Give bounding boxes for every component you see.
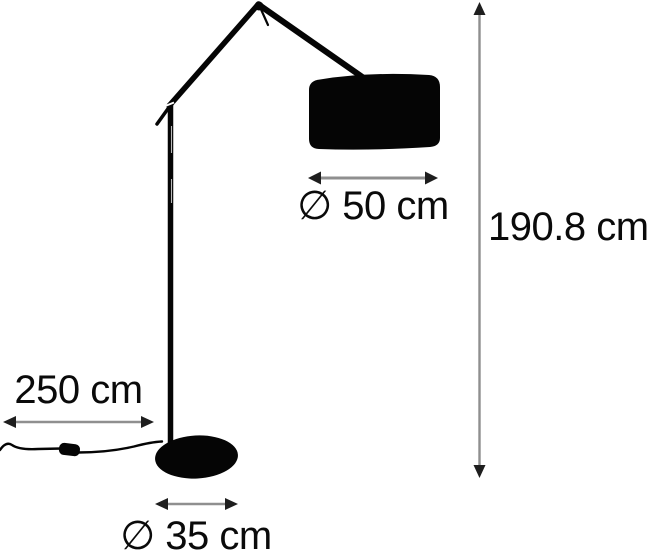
lamp-dimension-diagram: ∅ 50 cm 190.8 cm 250 cm ∅ 35 cm: [0, 0, 651, 550]
diagram-canvas: [0, 0, 651, 550]
arrowhead-right-icon: [141, 416, 154, 428]
power-cord-left: [0, 444, 62, 450]
height-label: 190.8 cm: [488, 207, 649, 247]
lamp-shade-arm: [259, 5, 369, 82]
lamp-base: [154, 433, 239, 480]
arrowhead-left-icon: [3, 416, 16, 428]
shade-diameter-label: ∅ 50 cm: [288, 186, 458, 226]
lamp-shade: [309, 74, 440, 150]
arrowhead-down-icon: [474, 465, 486, 478]
arrowhead-right-icon: [425, 172, 438, 185]
arrowhead-left-icon: [155, 498, 168, 510]
power-plug: [58, 442, 80, 456]
cord-length-arrow: [3, 416, 154, 428]
power-cord-right: [78, 442, 162, 453]
lamp-elbow-stub: [157, 108, 169, 124]
arrowhead-left-icon: [308, 172, 321, 185]
base-diameter-label: ∅ 35 cm: [111, 516, 281, 550]
lamp-upper-arm: [169, 4, 259, 106]
arrowhead-right-icon: [225, 498, 238, 510]
arrowhead-up-icon: [474, 2, 486, 15]
cord-length-label: 250 cm: [1, 370, 156, 410]
base-diameter-arrow: [155, 498, 238, 510]
height-arrow: [474, 2, 486, 478]
shade-diameter-arrow: [308, 172, 438, 185]
